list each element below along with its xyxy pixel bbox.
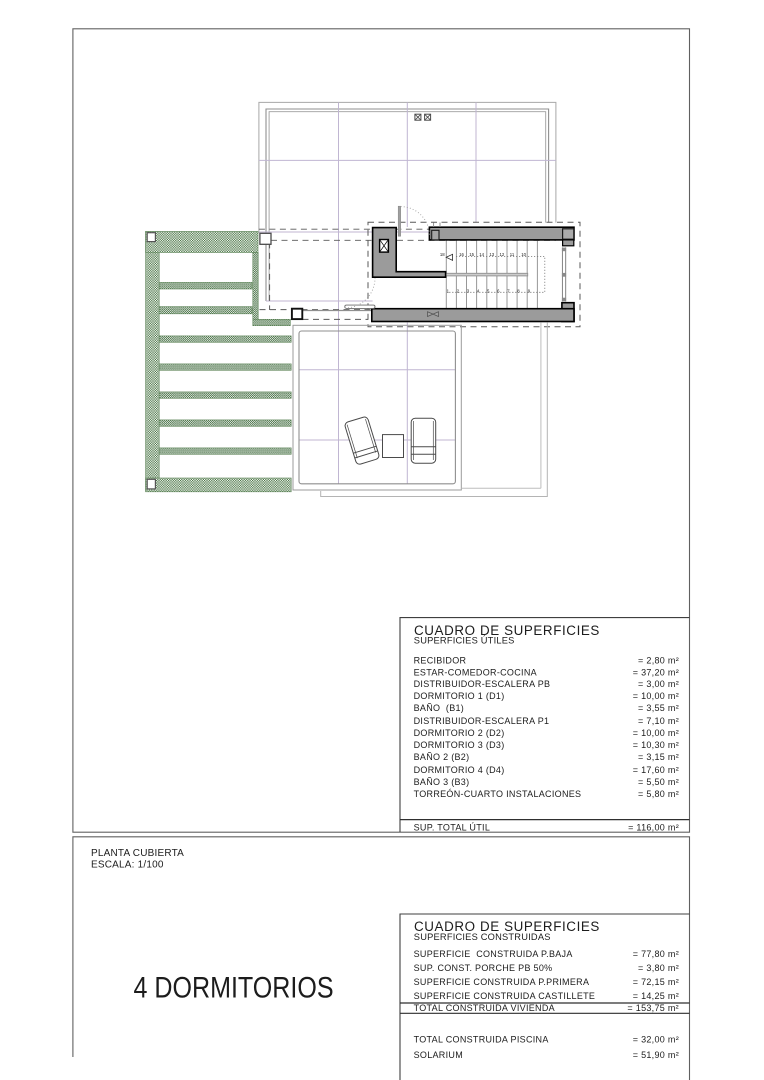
svg-text:9: 9 (528, 289, 531, 294)
svg-text:= 3,00 m²: = 3,00 m² (638, 679, 679, 689)
svg-text:= 5,80 m²: = 5,80 m² (638, 789, 679, 799)
svg-text:= 10,00 m²: = 10,00 m² (633, 691, 679, 701)
svg-text:DORMITORIO 4 (D4): DORMITORIO 4 (D4) (414, 765, 505, 775)
svg-text:= 10,00 m²: = 10,00 m² (633, 728, 679, 738)
svg-text:= 14,25 m²: = 14,25 m² (633, 991, 679, 1001)
svg-text:6: 6 (497, 289, 500, 294)
svg-text:DORMITORIO 1 (D1): DORMITORIO 1 (D1) (414, 691, 505, 701)
svg-text:13: 13 (489, 252, 494, 257)
svg-text:7: 7 (507, 289, 510, 294)
svg-text:14: 14 (479, 252, 484, 257)
svg-text:= 72,15 m²: = 72,15 m² (633, 977, 679, 987)
svg-text:SUP. CONST. PORCHE PB 50%: SUP. CONST. PORCHE PB 50% (414, 963, 553, 973)
svg-text:SUPERFICIE CONSTRUIDA P.BAJA: SUPERFICIE CONSTRUIDA P.BAJA (414, 949, 573, 959)
svg-text:2: 2 (457, 289, 460, 294)
svg-text:DISTRIBUIDOR-ESCALERA PB: DISTRIBUIDOR-ESCALERA PB (414, 679, 551, 689)
svg-text:= 77,80 m²: = 77,80 m² (633, 949, 679, 959)
svg-text:SUP. TOTAL ÚTIL: SUP. TOTAL ÚTIL (414, 823, 491, 833)
svg-text:= 3,55 m²: = 3,55 m² (638, 703, 679, 713)
svg-text:18: 18 (440, 252, 445, 257)
svg-text:ESTAR-COMEDOR-COCINA: ESTAR-COMEDOR-COCINA (414, 667, 537, 677)
svg-text:BAÑO (B1): BAÑO (B1) (414, 703, 465, 713)
svg-text:TOTAL CONSTRUIDA VIVIENDA: TOTAL CONSTRUIDA VIVIENDA (414, 1003, 555, 1013)
svg-text:11: 11 (510, 252, 515, 257)
svg-text:3: 3 (467, 289, 470, 294)
svg-text:= 116,00 m²: = 116,00 m² (628, 823, 679, 833)
svg-text:SUPERFICIE CONSTRUIDA P.PRIMER: SUPERFICIE CONSTRUIDA P.PRIMERA (414, 977, 590, 987)
svg-text:8: 8 (517, 289, 520, 294)
svg-text:= 10,30 m²: = 10,30 m² (633, 740, 679, 750)
svg-text:= 51,90 m²: = 51,90 m² (633, 1050, 679, 1060)
svg-text:4: 4 (477, 289, 480, 294)
svg-text:DORMITORIO 2 (D2): DORMITORIO 2 (D2) (414, 728, 505, 738)
svg-text:DORMITORIO 3 (D3): DORMITORIO 3 (D3) (414, 740, 505, 750)
svg-text:= 17,60 m²: = 17,60 m² (633, 765, 679, 775)
svg-text:DISTRIBUIDOR-ESCALERA P1: DISTRIBUIDOR-ESCALERA P1 (414, 716, 550, 726)
svg-text:RECIBIDOR: RECIBIDOR (414, 655, 467, 665)
svg-text:= 3,15 m²: = 3,15 m² (638, 752, 679, 762)
svg-text:5: 5 (487, 289, 490, 294)
svg-text:ESCALA: 1/100: ESCALA: 1/100 (91, 859, 164, 870)
svg-text:16: 16 (459, 252, 464, 257)
svg-text:SOLARIUM: SOLARIUM (414, 1050, 463, 1060)
svg-text:PLANTA CUBIERTA: PLANTA CUBIERTA (91, 848, 184, 859)
svg-text:= 7,10 m²: = 7,10 m² (638, 716, 679, 726)
svg-text:SUPERFICIE CONSTRUIDA CASTILLE: SUPERFICIE CONSTRUIDA CASTILLETE (414, 991, 596, 1001)
svg-text:TOTAL CONSTRUIDA PISCINA: TOTAL CONSTRUIDA PISCINA (414, 1035, 549, 1045)
svg-text:SUPERFICIES ÚTILES: SUPERFICIES ÚTILES (414, 636, 515, 646)
svg-text:4 DORMITORIOS: 4 DORMITORIOS (134, 971, 334, 1004)
svg-text:= 153,75 m²: = 153,75 m² (627, 1003, 679, 1013)
svg-text:= 2,80 m²: = 2,80 m² (638, 655, 679, 665)
svg-text:BAÑO 2 (B2): BAÑO 2 (B2) (414, 752, 470, 762)
svg-text:BAÑO 3 (B3): BAÑO 3 (B3) (414, 777, 470, 787)
svg-text:= 37,20 m²: = 37,20 m² (633, 667, 679, 677)
svg-text:= 32,00 m²: = 32,00 m² (633, 1035, 679, 1045)
svg-text:12: 12 (500, 252, 505, 257)
svg-text:= 5,50 m²: = 5,50 m² (638, 777, 679, 787)
svg-text:SUPERFICIES CONSTRUIDAS: SUPERFICIES CONSTRUIDAS (414, 932, 551, 942)
svg-text:1: 1 (447, 289, 450, 294)
svg-text:15: 15 (469, 252, 474, 257)
svg-text:= 3,80 m²: = 3,80 m² (638, 963, 679, 973)
svg-text:10: 10 (521, 252, 526, 257)
svg-text:TORREÓN-CUARTO INSTALACIONES: TORREÓN-CUARTO INSTALACIONES (414, 789, 582, 799)
